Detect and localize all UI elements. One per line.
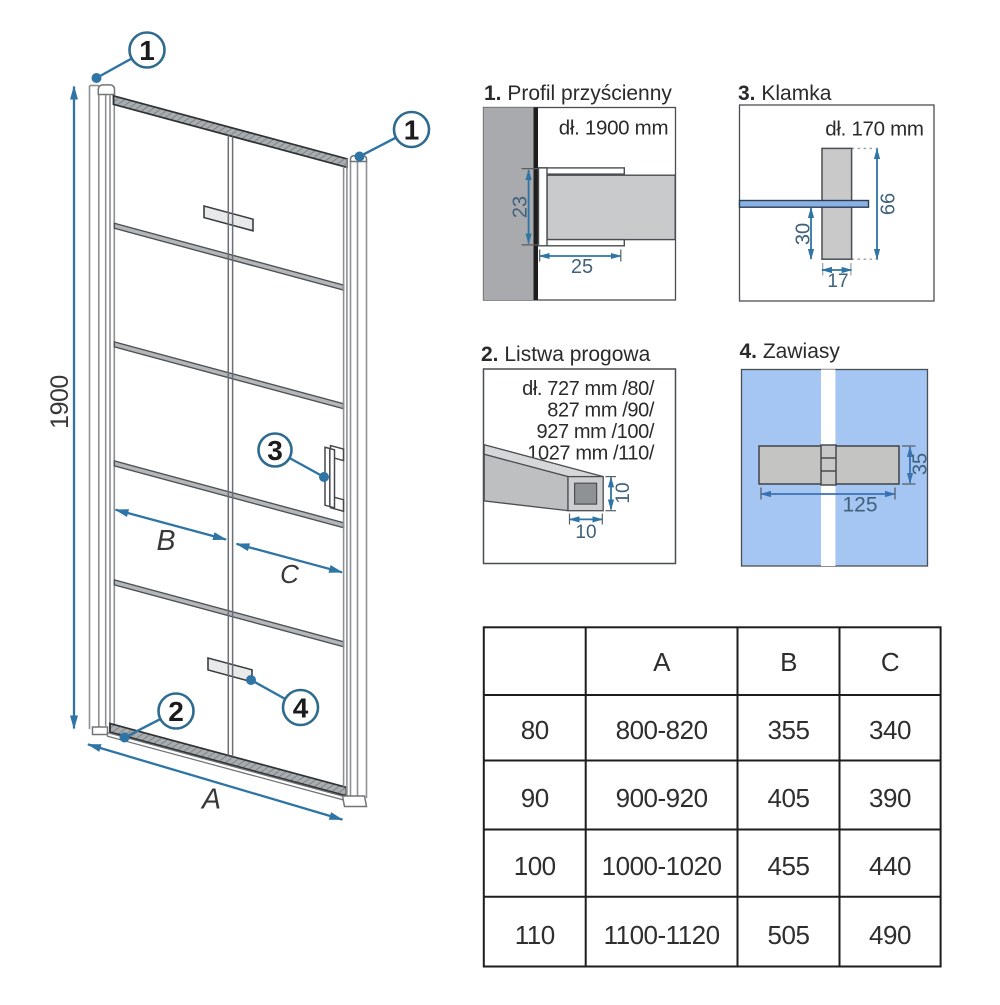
svg-text:2. Listwa progowa: 2. Listwa progowa	[481, 343, 651, 366]
svg-text:C: C	[881, 647, 899, 677]
svg-text:dł. 1900 mm: dł. 1900 mm	[559, 117, 669, 140]
svg-text:490: 490	[869, 920, 911, 950]
svg-text:1. Profil przyścienny: 1. Profil przyścienny	[484, 82, 672, 105]
svg-text:355: 355	[768, 715, 810, 745]
svg-text:B: B	[780, 647, 797, 677]
svg-text:927 mm /100/: 927 mm /100/	[537, 421, 655, 443]
svg-text:10: 10	[575, 522, 596, 543]
svg-text:80: 80	[521, 715, 549, 745]
svg-text:4. Zawiasy: 4. Zawiasy	[740, 340, 841, 363]
svg-text:405: 405	[768, 783, 810, 813]
svg-text:110: 110	[515, 920, 555, 950]
svg-text:3. Klamka: 3. Klamka	[738, 82, 832, 105]
svg-text:A: A	[653, 647, 671, 677]
svg-text:23: 23	[510, 196, 532, 218]
svg-text:C: C	[280, 559, 299, 589]
svg-text:1900: 1900	[46, 375, 74, 429]
svg-text:2: 2	[168, 696, 184, 727]
svg-text:1000-1020: 1000-1020	[602, 851, 722, 881]
svg-text:440: 440	[869, 851, 911, 881]
svg-text:900-920: 900-920	[616, 783, 708, 813]
svg-text:25: 25	[571, 256, 593, 278]
svg-text:dł. 727 mm /80/: dł. 727 mm /80/	[522, 378, 655, 400]
svg-text:340: 340	[869, 715, 911, 745]
svg-text:827 mm /90/: 827 mm /90/	[547, 400, 655, 422]
svg-text:455: 455	[768, 851, 810, 881]
svg-text:A: A	[200, 784, 221, 816]
svg-text:90: 90	[521, 783, 549, 813]
svg-text:125: 125	[842, 494, 877, 517]
svg-text:1: 1	[404, 115, 420, 146]
svg-text:1100-1120: 1100-1120	[604, 920, 720, 950]
svg-text:3: 3	[267, 435, 283, 466]
svg-text:30: 30	[793, 223, 815, 245]
svg-text:66: 66	[878, 193, 900, 215]
svg-text:800-820: 800-820	[616, 715, 708, 745]
svg-text:dł. 170 mm: dł. 170 mm	[825, 118, 923, 141]
svg-text:4: 4	[293, 693, 309, 724]
svg-text:35: 35	[910, 453, 932, 475]
svg-text:B: B	[156, 525, 175, 557]
svg-text:10: 10	[613, 482, 634, 503]
svg-text:17: 17	[827, 271, 848, 292]
svg-text:100: 100	[514, 851, 556, 881]
svg-text:1: 1	[139, 35, 155, 66]
svg-text:505: 505	[768, 920, 810, 950]
svg-text:390: 390	[869, 783, 911, 813]
